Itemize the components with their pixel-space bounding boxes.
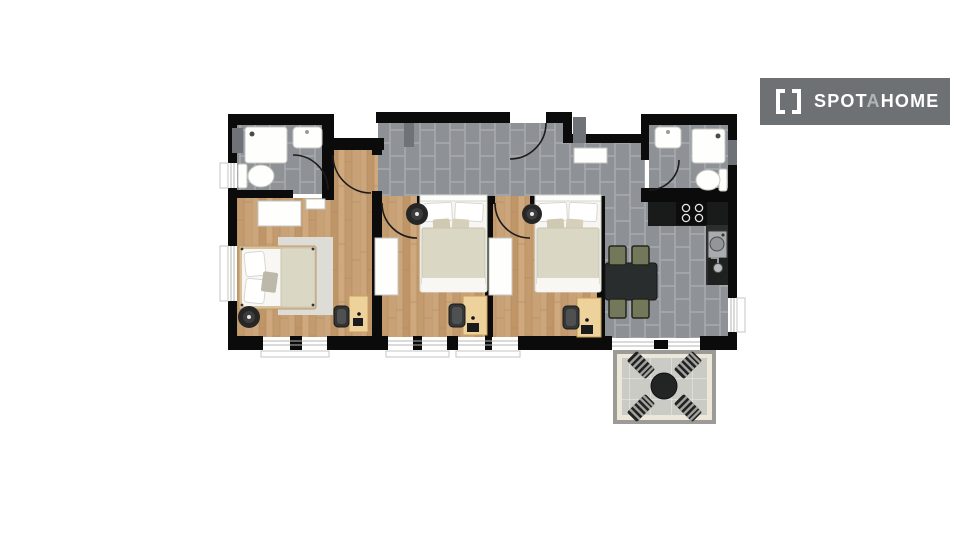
wardrobe xyxy=(489,238,512,295)
kitchen-sink xyxy=(714,264,723,273)
window-bedroom3 xyxy=(492,337,518,349)
bed-sheet-fold xyxy=(537,278,599,292)
pouf xyxy=(522,204,542,224)
bed-sheet-fold xyxy=(422,278,485,292)
desk-chair-seat xyxy=(337,309,346,324)
balcony xyxy=(613,350,716,424)
toilet-bowl xyxy=(696,170,720,190)
window-bedroom1 xyxy=(302,337,327,349)
hallway-shelf xyxy=(574,148,607,163)
shower-tray xyxy=(692,129,725,163)
window-bedroom3 xyxy=(458,337,485,349)
spotahome-brackets-icon xyxy=(776,89,801,114)
pillow xyxy=(539,202,568,221)
window-kitchen xyxy=(728,298,737,332)
desk-chair-seat xyxy=(566,309,576,326)
pouf xyxy=(406,203,428,225)
window-bedroom2 xyxy=(422,337,447,349)
desk-lamp-icon xyxy=(585,318,589,322)
dining-chair xyxy=(609,246,626,265)
washing-machine-door-icon xyxy=(710,237,724,251)
toilet-tank xyxy=(238,164,247,188)
desk-lamp-icon xyxy=(471,316,475,320)
window-bedroom2 xyxy=(388,337,413,349)
sink-faucet-icon xyxy=(666,130,670,134)
window-left-large xyxy=(228,246,237,301)
dining-table xyxy=(605,263,657,300)
desk-chair-seat xyxy=(452,307,462,324)
dining-chair xyxy=(632,246,649,265)
logo-text-home: HOME xyxy=(881,91,940,111)
wardrobe xyxy=(258,201,301,226)
window-bedroom1 xyxy=(263,337,290,349)
washing-machine-knob-icon xyxy=(722,234,725,237)
balcony-table xyxy=(651,373,677,399)
pouf xyxy=(238,306,260,328)
floorplan-page: SPOTAHOME xyxy=(0,0,960,540)
pillow xyxy=(455,202,484,221)
laptop-icon xyxy=(581,325,593,334)
folded-blanket xyxy=(261,271,279,293)
desk-lamp-icon xyxy=(357,312,361,316)
laptop-icon xyxy=(467,323,479,332)
headboard xyxy=(535,195,601,201)
spotahome-logo: SPOTAHOME xyxy=(760,78,950,125)
dining-chair xyxy=(632,299,649,318)
sink-faucet-icon xyxy=(305,130,309,134)
pillow xyxy=(569,202,598,221)
laptop-icon xyxy=(353,318,363,326)
sliding-door-handle xyxy=(654,340,668,349)
pillow xyxy=(244,251,266,277)
shelf xyxy=(306,199,325,209)
duvet xyxy=(281,248,315,307)
duvet xyxy=(537,228,599,285)
duvet xyxy=(422,228,485,285)
shower-drain-icon xyxy=(716,134,721,139)
toilet-bowl xyxy=(248,165,274,187)
logo-text-a: A xyxy=(866,91,880,111)
logo-text-spot: SPOT xyxy=(814,91,866,111)
shower-drain-icon xyxy=(250,132,255,137)
spotahome-wordmark: SPOTAHOME xyxy=(814,91,940,112)
wardrobe xyxy=(375,238,398,295)
headboard xyxy=(420,195,487,201)
dining-chair xyxy=(609,299,626,318)
window-left-small xyxy=(228,163,237,188)
entrance-door-gap xyxy=(510,112,546,123)
